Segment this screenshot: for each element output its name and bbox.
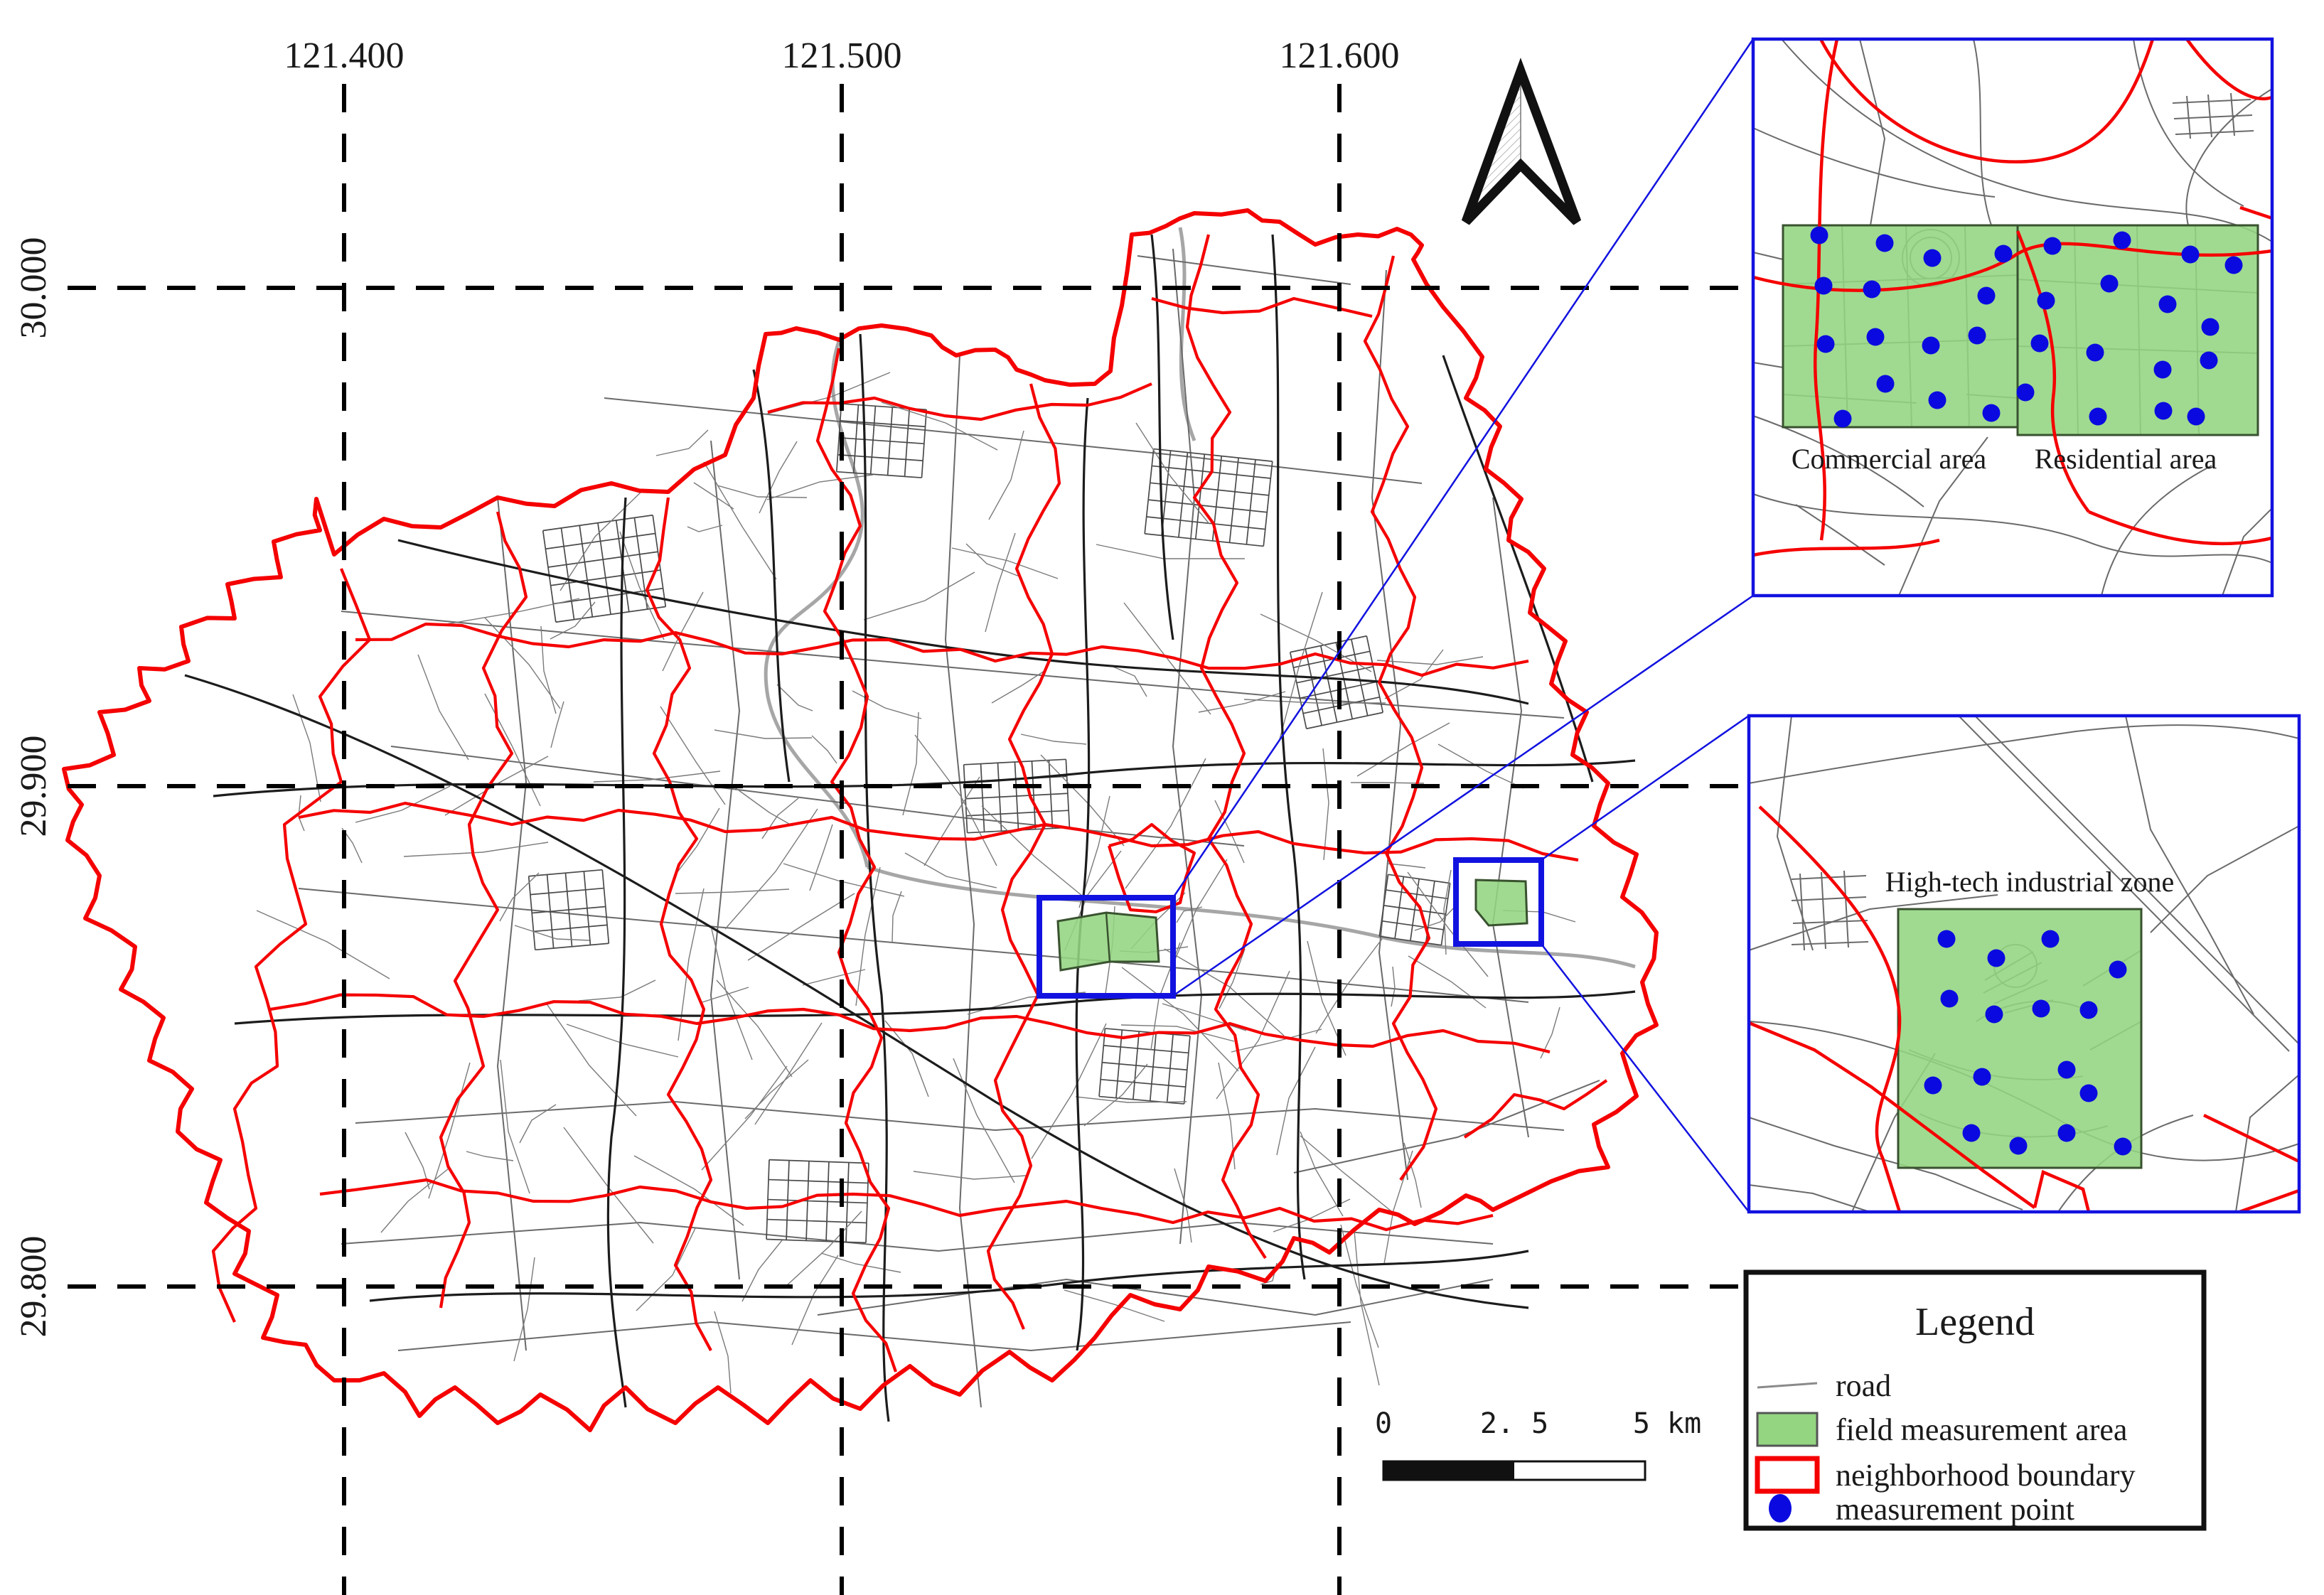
measurement-point [1834, 410, 1852, 428]
road [675, 889, 789, 893]
measurement-point [2087, 344, 2104, 362]
road [429, 1063, 470, 1198]
road [755, 1023, 822, 1124]
road [915, 735, 997, 866]
major-road [235, 992, 1635, 1024]
major-road [1443, 355, 1592, 782]
road [1290, 636, 1367, 652]
measurement-point [1983, 404, 2001, 422]
measurement-point [1988, 950, 2006, 967]
measurement-point [2200, 352, 2218, 370]
legend-label-boundary: neighborhood boundary [1836, 1458, 2136, 1493]
lon-label-121-400: 121.400 [284, 36, 405, 76]
legend-title: Legend [1915, 1300, 2035, 1344]
road [759, 441, 797, 513]
neighborhood-boundaries [64, 210, 1656, 1430]
road [1125, 758, 1206, 888]
measurement-point [1867, 328, 1885, 346]
lat-label-30-000: 30.000 [14, 237, 54, 339]
major-road [1273, 235, 1305, 1279]
road [1173, 249, 1201, 1244]
road [812, 736, 837, 763]
road [551, 702, 564, 748]
measurement-point [1978, 287, 1996, 305]
road [1366, 636, 1383, 713]
measurement-point [2033, 1000, 2050, 1018]
road [769, 1180, 868, 1183]
label-hightech-zone: High-tech industrial zone [1885, 866, 2175, 898]
neighborhood-boundary [270, 995, 1550, 1052]
road [1021, 734, 1086, 744]
measurement-point [2037, 292, 2055, 310]
measurement-point [2031, 335, 2049, 353]
measurement-point [1929, 392, 1947, 409]
measurement-point [1817, 335, 1835, 353]
road [742, 1240, 782, 1301]
measurement-point [1963, 1124, 1981, 1142]
road [1147, 517, 1265, 530]
road [660, 707, 725, 805]
street-grid [1379, 874, 1450, 945]
street-grid [837, 404, 926, 478]
street-grid [766, 1160, 869, 1243]
road [1351, 639, 1368, 716]
measurement-point [2058, 1061, 2076, 1079]
road [1307, 712, 1383, 729]
street-grid [964, 759, 1070, 832]
study-area-map: 121.400 121.500 121.600 30.000 29.900 29… [0, 0, 2324, 1595]
road [1196, 454, 1205, 539]
measurement-point [1974, 1068, 1991, 1086]
road [1300, 1132, 1343, 1216]
road [769, 1160, 869, 1164]
figure-canvas: 121.400 121.500 121.600 30.000 29.900 29… [0, 0, 2324, 1595]
inset-connector [1173, 39, 1753, 898]
field-area-swatch-icon [1757, 1413, 1817, 1446]
measurement-point [1877, 375, 1895, 393]
major-road [608, 498, 626, 1407]
road [579, 980, 655, 1001]
road [702, 1066, 787, 1170]
measurement-point [2101, 275, 2119, 293]
road [777, 684, 813, 711]
measurement-point [2044, 237, 2062, 255]
road [989, 431, 1024, 520]
road [1137, 256, 1351, 284]
road [1032, 1024, 1106, 1159]
road [381, 1169, 449, 1232]
street-grid [1099, 1029, 1190, 1104]
road [1150, 483, 1269, 495]
lat-label-29-800: 29.800 [14, 1236, 54, 1338]
road-texture [257, 372, 1575, 1393]
major-road [754, 370, 789, 782]
measurement-point [2159, 296, 2177, 313]
legend-label-road: road [1836, 1368, 1891, 1403]
measurement-point [1811, 227, 1828, 245]
neighborhood-boundary [1187, 235, 1265, 1258]
north-arrow-icon [1466, 71, 1577, 222]
road [418, 655, 468, 760]
inset-connector [1173, 596, 1753, 996]
measurement-point [1938, 930, 1956, 948]
road [903, 712, 919, 815]
label-residential-area: Residential area [2035, 443, 2217, 475]
road [1219, 949, 1245, 1009]
road [579, 525, 592, 617]
lon-label-121-500: 121.500 [782, 36, 902, 76]
road [1102, 1063, 1187, 1070]
main-map [64, 210, 1656, 1430]
city-outer-boundary [64, 210, 1656, 1430]
road [355, 1102, 1564, 1130]
road [1170, 859, 1227, 971]
road [1391, 967, 1395, 1006]
road [985, 533, 1015, 632]
street-grid [529, 870, 609, 950]
road [839, 438, 924, 444]
neighborhood-boundary [1464, 1080, 1607, 1137]
measurement-point [2114, 232, 2131, 249]
measurement-point [1995, 245, 2013, 263]
neighborhood-boundary-swatch-icon [1757, 1459, 1817, 1491]
measurement-point [2154, 361, 2172, 379]
lat-label-29-900: 29.900 [14, 736, 54, 837]
measurement-point [1969, 327, 1986, 345]
road [1124, 603, 1211, 714]
field-measurement-area [1476, 880, 1527, 925]
road [1246, 460, 1255, 544]
measurement-point [2188, 408, 2205, 426]
road [656, 430, 708, 456]
scale-bar: 0 2. 5 5 km [1375, 1407, 1701, 1480]
road [810, 825, 832, 891]
legend-label-point: measurement point [1836, 1492, 2074, 1527]
street-grid-clusters [529, 404, 1450, 1242]
road [1064, 1290, 1164, 1321]
road [1300, 1136, 1395, 1214]
road [398, 1322, 1351, 1350]
road [1323, 748, 1329, 860]
neighborhood-boundary [1365, 256, 1436, 1180]
road [924, 777, 980, 866]
road [1351, 783, 1424, 783]
road [717, 485, 807, 498]
measurement-point [1924, 249, 1942, 267]
road [485, 694, 540, 806]
road [1357, 723, 1450, 776]
road [687, 525, 722, 532]
scale-bar-filled-half [1383, 1461, 1514, 1480]
measurement-point [1924, 1077, 1942, 1095]
road [1145, 449, 1154, 534]
road [1179, 453, 1188, 537]
road [1305, 649, 1322, 726]
measurement-point [2114, 1138, 2132, 1156]
neighborhood-boundary [320, 1180, 1493, 1230]
measurement-point-icon [1769, 1494, 1792, 1522]
road [299, 888, 1528, 1002]
road [905, 853, 997, 888]
lon-label-121-600: 121.600 [1280, 36, 1400, 76]
road [768, 1200, 867, 1203]
major-road [370, 1251, 1528, 1301]
road [404, 842, 548, 856]
measurement-point [2182, 246, 2200, 264]
label-commercial-area: Commercial area [1792, 443, 1987, 475]
inset-hightech-zone: High-tech industrial zone [1749, 716, 2299, 1212]
measurement-point [1876, 235, 1894, 252]
road [561, 528, 574, 620]
road [1110, 665, 1147, 697]
measurement-point [2010, 1137, 2028, 1155]
measurement-point [2155, 402, 2173, 420]
road [1122, 967, 1238, 1071]
road [1277, 1047, 1315, 1155]
scale-5km: 5 km [1633, 1407, 1701, 1440]
road [1148, 500, 1267, 512]
road [500, 1060, 530, 1193]
road [1354, 1231, 1379, 1385]
neighborhood-boundary [988, 384, 1059, 1329]
measurement-point [2017, 384, 2035, 402]
measurement-point [2042, 930, 2060, 948]
measurement-point [1922, 337, 1940, 355]
road [892, 891, 901, 942]
road [1263, 461, 1273, 546]
road [634, 1156, 744, 1225]
measurement-point [1863, 281, 1881, 299]
measurement-point [1815, 277, 1833, 295]
inset-bottom-field-area [1898, 909, 2141, 1168]
road [837, 472, 922, 478]
road [598, 523, 611, 615]
road [1230, 458, 1239, 542]
road [966, 544, 1019, 576]
measurement-point [1941, 990, 1959, 1008]
scale-0: 0 [1375, 1407, 1392, 1440]
road [500, 873, 539, 921]
road [864, 572, 975, 620]
measurement-point [2080, 1085, 2098, 1102]
road [541, 626, 556, 714]
inset-commercial-residential: Commercial area Residential area [1753, 39, 2272, 596]
measurement-point [2225, 257, 2243, 274]
field-measurement-area [1898, 909, 2141, 1168]
road [694, 483, 734, 509]
road [704, 462, 776, 579]
major-road [860, 334, 889, 1422]
road [1199, 692, 1285, 712]
road [1408, 956, 1486, 1008]
measurement-point [1986, 1006, 2003, 1024]
legend-label-field-area: field measurement area [1836, 1412, 2127, 1447]
road [882, 402, 997, 450]
measurement-point [2080, 1001, 2098, 1019]
road [711, 441, 739, 1279]
road [714, 730, 812, 739]
road [498, 498, 526, 1350]
road [1101, 1080, 1186, 1087]
neighborhood-boundary [818, 348, 896, 1372]
road [514, 1257, 535, 1361]
road [257, 911, 390, 979]
measurement-point [2058, 1124, 2076, 1142]
road [1216, 971, 1290, 1099]
road [717, 980, 792, 1077]
measurement-point [2109, 961, 2127, 979]
major-road [1076, 398, 1088, 1350]
scale-2-5: 2. 5 [1480, 1407, 1548, 1440]
street-grid [543, 515, 666, 622]
major-road [1152, 235, 1173, 640]
road [1103, 1046, 1189, 1053]
legend: Legend road field measurement area neigh… [1746, 1272, 2204, 1528]
road [885, 1021, 928, 1097]
measurement-point [2089, 408, 2107, 426]
road [803, 970, 865, 985]
measurement-point [2202, 318, 2219, 336]
